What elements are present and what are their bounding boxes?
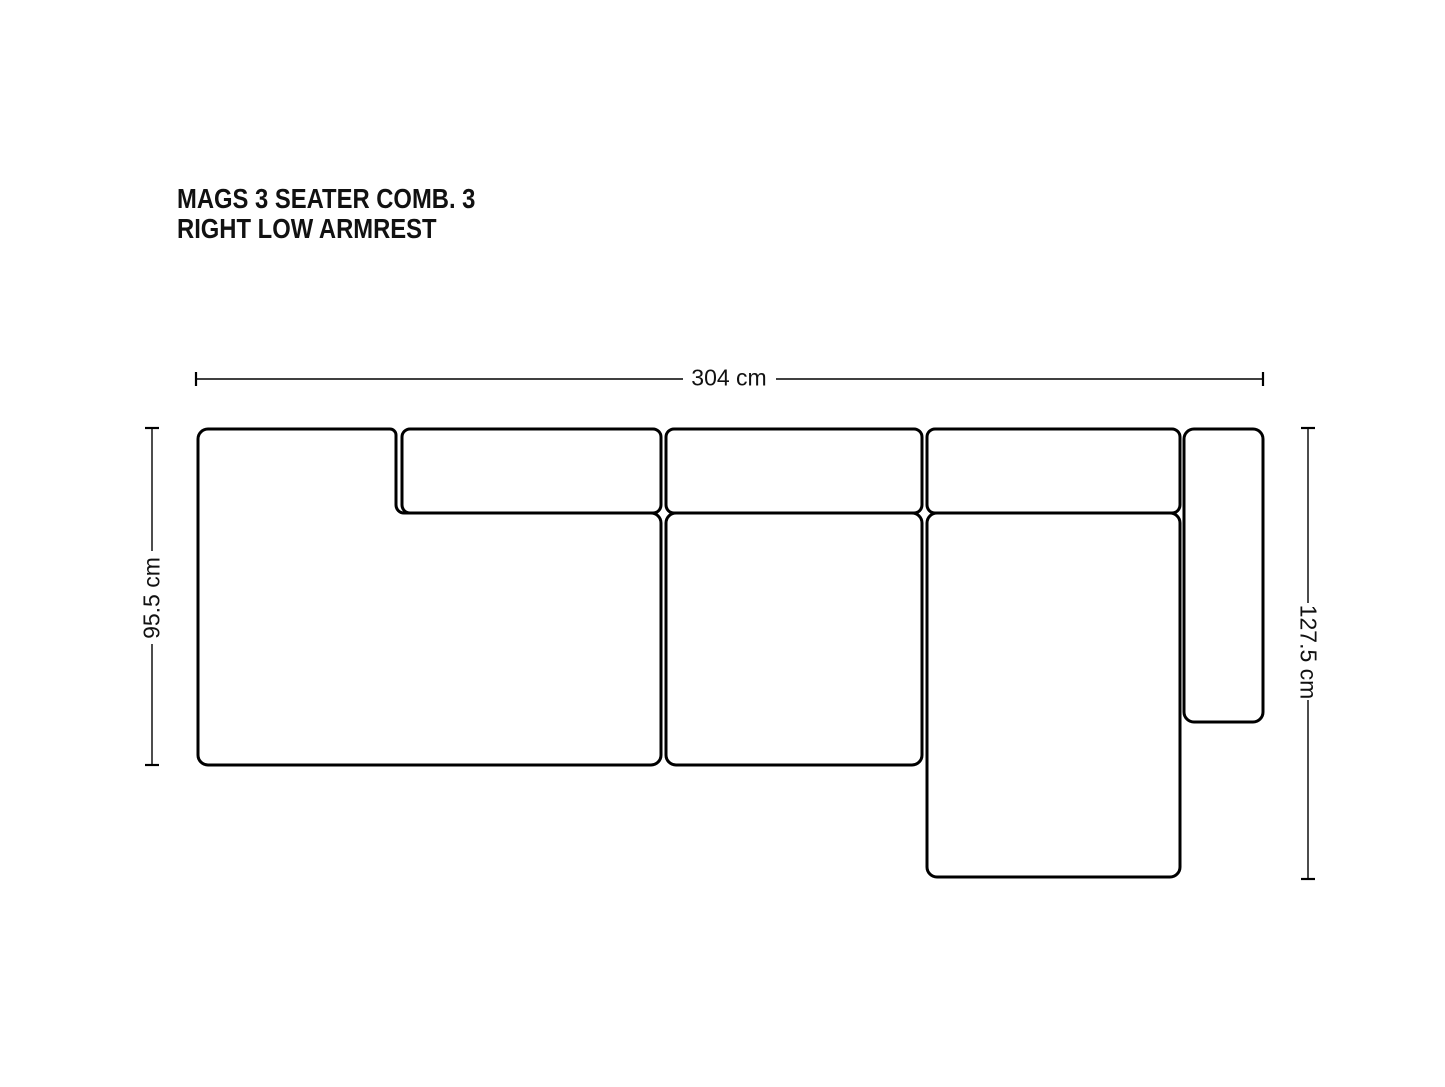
diagram-title: MAGS 3 SEATER COMB. 3 RIGHT LOW ARMREST bbox=[177, 184, 475, 244]
width-dimension-label: 304 cm bbox=[691, 365, 766, 392]
right-low-armrest bbox=[1184, 429, 1263, 722]
sofa-dimension-diagram: MAGS 3 SEATER COMB. 3 RIGHT LOW ARMREST … bbox=[0, 0, 1445, 1087]
diagram-title-line-2: RIGHT LOW ARMREST bbox=[177, 214, 475, 244]
back-cushion-middle bbox=[666, 429, 922, 513]
chaise-longue-module bbox=[927, 513, 1180, 877]
diagram-title-line-1: MAGS 3 SEATER COMB. 3 bbox=[177, 184, 475, 214]
back-cushion-left bbox=[402, 429, 661, 513]
sofa-modules bbox=[198, 429, 1263, 877]
seat-module-middle bbox=[666, 513, 922, 765]
sofa-line-drawing bbox=[0, 0, 1445, 1087]
left-depth-dimension-label: 95.5 cm bbox=[139, 557, 166, 639]
back-cushion-right bbox=[927, 429, 1180, 513]
right-depth-dimension-label: 127.5 cm bbox=[1295, 605, 1322, 700]
